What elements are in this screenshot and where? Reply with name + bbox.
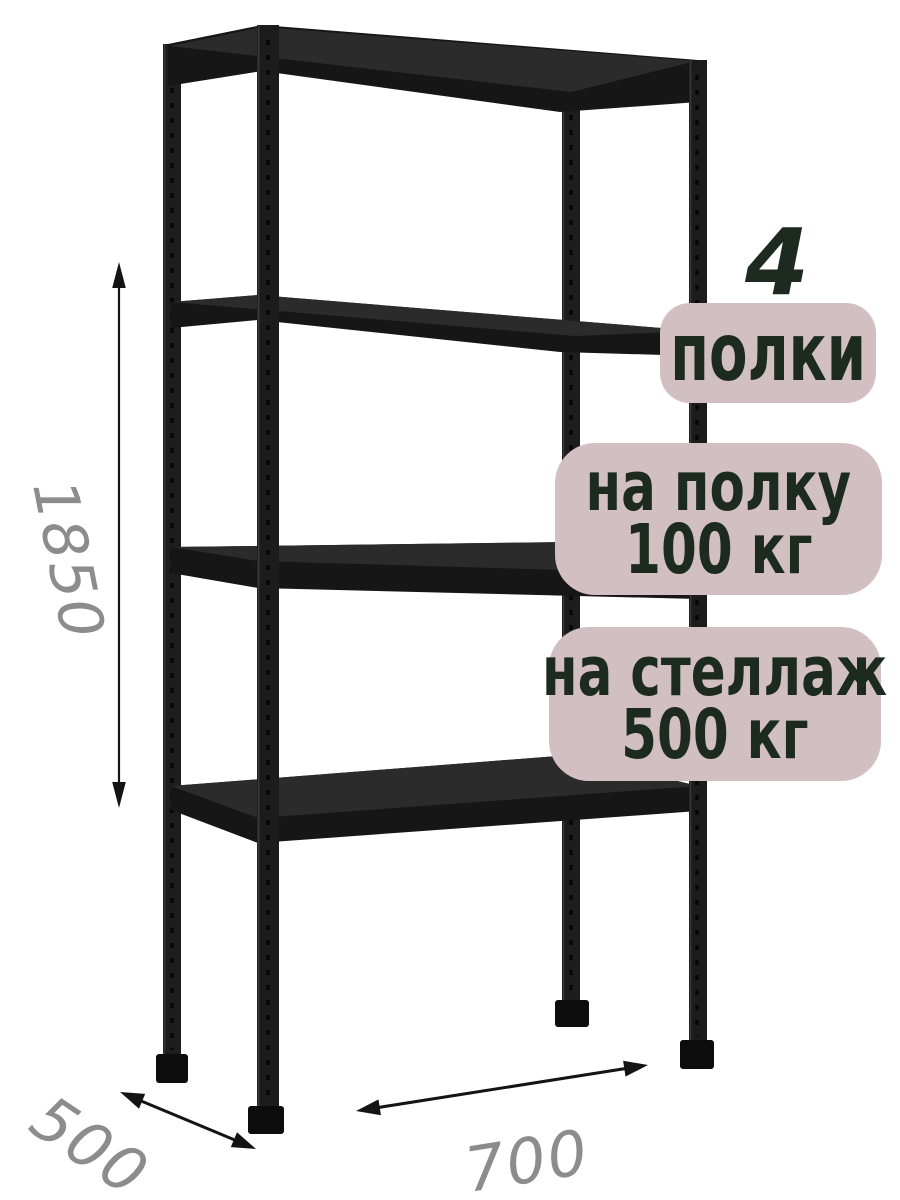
rack-foot-front-left	[248, 1106, 284, 1134]
rack-foot-back-left	[156, 1054, 188, 1083]
product-image: 1850 500 700 4 полки на полку 100 кг на …	[0, 0, 900, 1200]
rack-foot-front-right	[680, 1040, 714, 1069]
shelf-count-label: полки	[670, 307, 866, 398]
rack-post-front-left	[257, 25, 279, 1112]
rack-shelf-top	[168, 25, 698, 112]
shelf-count-number: 4	[745, 217, 809, 309]
width-dimension-arrow	[356, 1061, 648, 1115]
per-shelf-load-value: 100 кг	[625, 512, 812, 589]
per-rack-load-value: 500 кг	[621, 697, 808, 774]
rack-illustration	[0, 0, 900, 1200]
shelf-count-badge: полки	[660, 303, 876, 403]
per-rack-load-badge: на стеллаж 500 кг	[549, 627, 881, 781]
per-shelf-load-badge: на полку 100 кг	[555, 443, 882, 595]
rack-shelf-2	[171, 295, 698, 356]
height-dimension-arrow	[112, 262, 126, 808]
rack-foot-back-right	[555, 1000, 589, 1027]
